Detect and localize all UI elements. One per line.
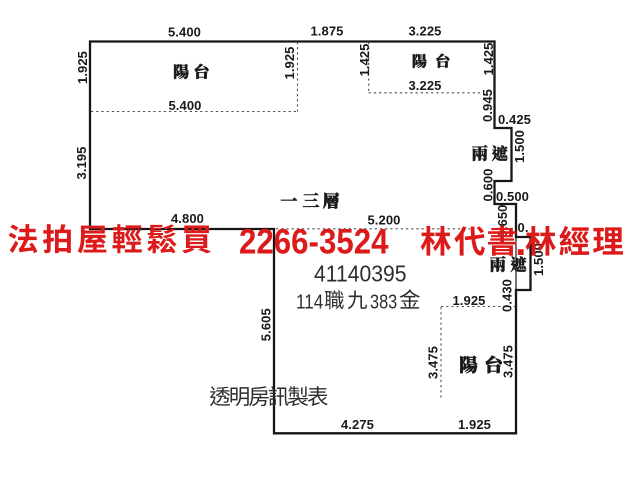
svg-text:41140395: 41140395 [314, 261, 407, 287]
svg-text:1.875: 1.875 [310, 24, 343, 39]
svg-text:4.800: 4.800 [171, 211, 204, 226]
svg-text:1.425: 1.425 [357, 43, 372, 76]
svg-text:3.475: 3.475 [426, 346, 441, 379]
svg-text:3.195: 3.195 [74, 146, 89, 179]
svg-text:3.225: 3.225 [408, 24, 441, 39]
svg-text:2266-3524: 2266-3524 [239, 222, 389, 262]
svg-text:5.400: 5.400 [168, 98, 201, 113]
svg-text:1.500: 1.500 [512, 130, 527, 163]
svg-text:383: 383 [370, 291, 397, 313]
svg-text:0.945: 0.945 [480, 89, 495, 122]
svg-text:1.925: 1.925 [452, 293, 485, 308]
svg-text:5.400: 5.400 [168, 24, 201, 39]
svg-text:5.605: 5.605 [258, 308, 273, 341]
svg-text:1.425: 1.425 [481, 42, 496, 75]
svg-text:0.430: 0.430 [500, 279, 515, 312]
svg-text:3.475: 3.475 [501, 345, 516, 378]
svg-text:0.425: 0.425 [498, 112, 531, 127]
svg-text:3.225: 3.225 [408, 78, 441, 93]
svg-text:0.600: 0.600 [481, 168, 496, 201]
svg-text:114: 114 [296, 291, 323, 313]
svg-text:1.925: 1.925 [75, 51, 90, 84]
svg-text:0.500: 0.500 [496, 189, 529, 204]
svg-text:1.925: 1.925 [282, 46, 297, 79]
svg-text:4.275: 4.275 [341, 417, 374, 432]
svg-text:0.: 0. [518, 220, 529, 235]
svg-text:1.925: 1.925 [458, 417, 491, 432]
